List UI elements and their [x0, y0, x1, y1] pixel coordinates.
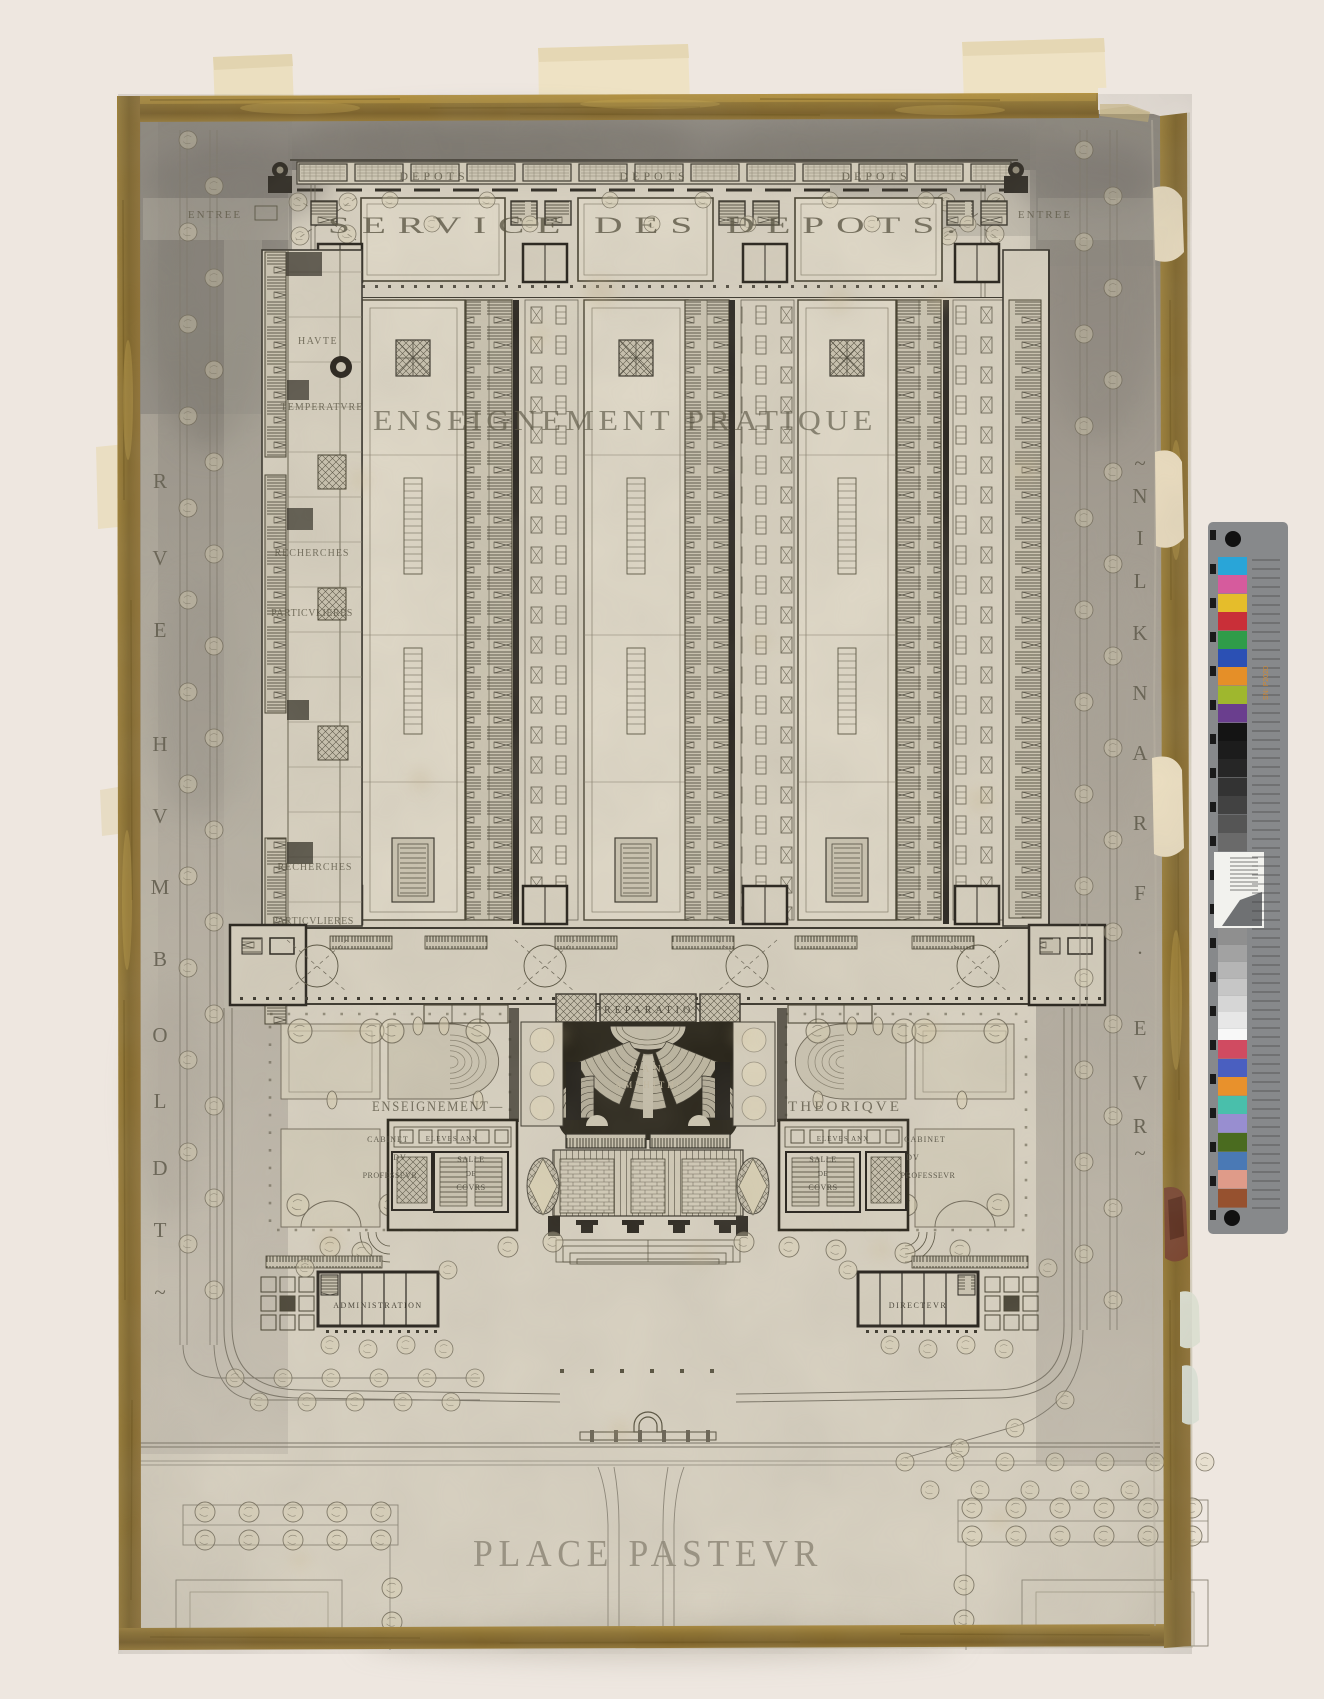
svg-text:SN: P2020: SN: P2020	[1263, 666, 1270, 700]
